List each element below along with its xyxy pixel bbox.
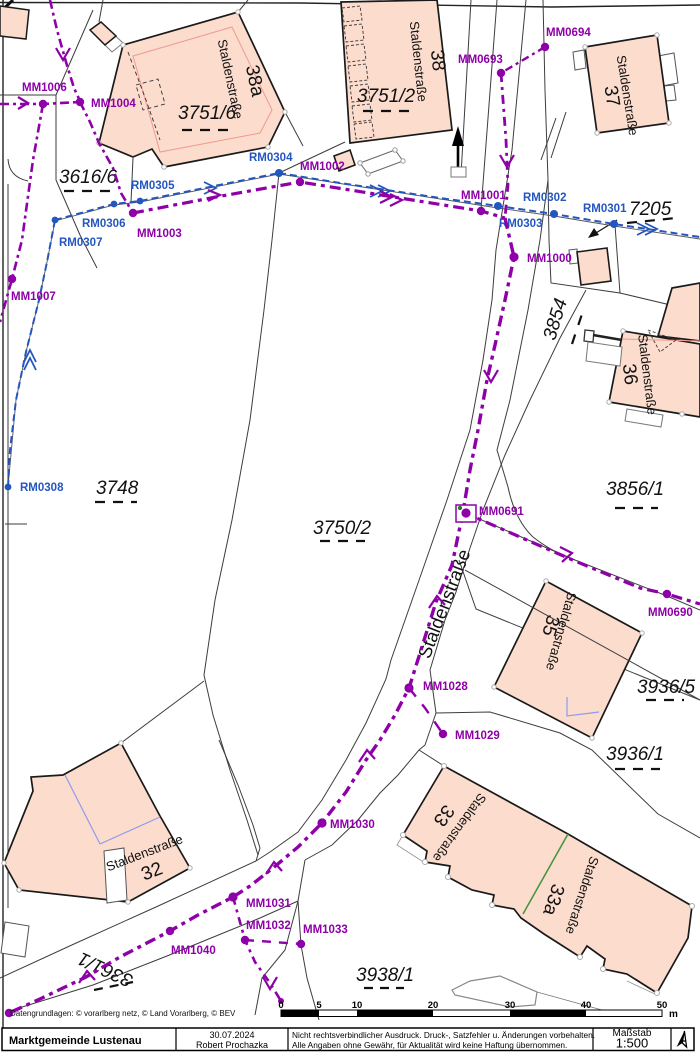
svg-text:MM1031: MM1031 [246, 898, 291, 910]
svg-text:MM1007: MM1007 [11, 291, 56, 303]
svg-text:50: 50 [657, 1000, 668, 1011]
svg-text:MM1032: MM1032 [246, 920, 291, 932]
svg-text:3936/1: 3936/1 [606, 744, 664, 765]
svg-text:MM1028: MM1028 [423, 681, 468, 693]
svg-text:Nicht rechtsverbindlicher Ausd: Nicht rechtsverbindlicher Ausdruck. Druc… [292, 1030, 595, 1040]
svg-text:1:500: 1:500 [616, 1036, 649, 1051]
svg-text:5: 5 [316, 1000, 322, 1011]
svg-text:MM1001: MM1001 [461, 190, 506, 202]
svg-text:3751/6: 3751/6 [178, 103, 237, 124]
svg-text:40: 40 [581, 1000, 592, 1011]
svg-text:3751/2: 3751/2 [357, 86, 416, 107]
svg-text:RM0304: RM0304 [249, 152, 293, 164]
svg-text:30: 30 [505, 1000, 516, 1011]
svg-text:Marktgemeinde Lustenau: Marktgemeinde Lustenau [9, 1035, 142, 1047]
svg-text:Alle Angaben ohne Gewähr, für: Alle Angaben ohne Gewähr, für Aktualität… [292, 1040, 567, 1050]
svg-text:0: 0 [278, 1000, 283, 1011]
svg-text:RM0307: RM0307 [59, 237, 102, 249]
svg-text:3856/1: 3856/1 [606, 479, 664, 500]
svg-text:37: 37 [599, 84, 623, 108]
svg-text:3616/6: 3616/6 [59, 167, 118, 188]
svg-text:30.07.2024: 30.07.2024 [209, 1030, 254, 1040]
svg-text:MM0693: MM0693 [458, 54, 503, 66]
svg-text:Robert Prochazka: Robert Prochazka [196, 1040, 268, 1050]
svg-text:m: m [669, 1009, 678, 1020]
svg-text:10: 10 [352, 1000, 363, 1011]
svg-text:RM0302: RM0302 [523, 192, 566, 204]
svg-text:MM1000: MM1000 [527, 253, 572, 265]
svg-text:MM0690: MM0690 [648, 607, 693, 619]
svg-text:MM1003: MM1003 [137, 228, 182, 240]
svg-text:MM1040: MM1040 [171, 945, 216, 957]
svg-text:38: 38 [426, 49, 449, 72]
svg-text:MM1006: MM1006 [22, 82, 67, 94]
svg-text:RM0306: RM0306 [82, 218, 125, 230]
svg-text:20: 20 [428, 1000, 439, 1011]
svg-text:MM1029: MM1029 [455, 730, 500, 742]
svg-text:RM0301: RM0301 [583, 203, 627, 215]
svg-text:MM0691: MM0691 [479, 506, 524, 518]
svg-text:7205: 7205 [629, 199, 672, 220]
svg-text:MM1004: MM1004 [91, 98, 136, 110]
svg-text:MM1030: MM1030 [330, 819, 375, 831]
svg-text:RM0308: RM0308 [20, 482, 64, 494]
svg-text:3750/2: 3750/2 [313, 518, 372, 539]
svg-text:MM1033: MM1033 [303, 924, 348, 936]
svg-text:MM1002: MM1002 [300, 161, 345, 173]
svg-text:RM0305: RM0305 [131, 180, 175, 192]
svg-text:Datengrundlagen: © vorarlberg: Datengrundlagen: © vorarlberg netz, © La… [10, 1009, 236, 1018]
svg-text:3936/5: 3936/5 [637, 677, 696, 698]
svg-text:3938/1: 3938/1 [356, 965, 414, 986]
svg-text:36: 36 [618, 363, 641, 387]
svg-text:3748: 3748 [96, 478, 139, 499]
svg-text:MM0694: MM0694 [546, 27, 591, 39]
